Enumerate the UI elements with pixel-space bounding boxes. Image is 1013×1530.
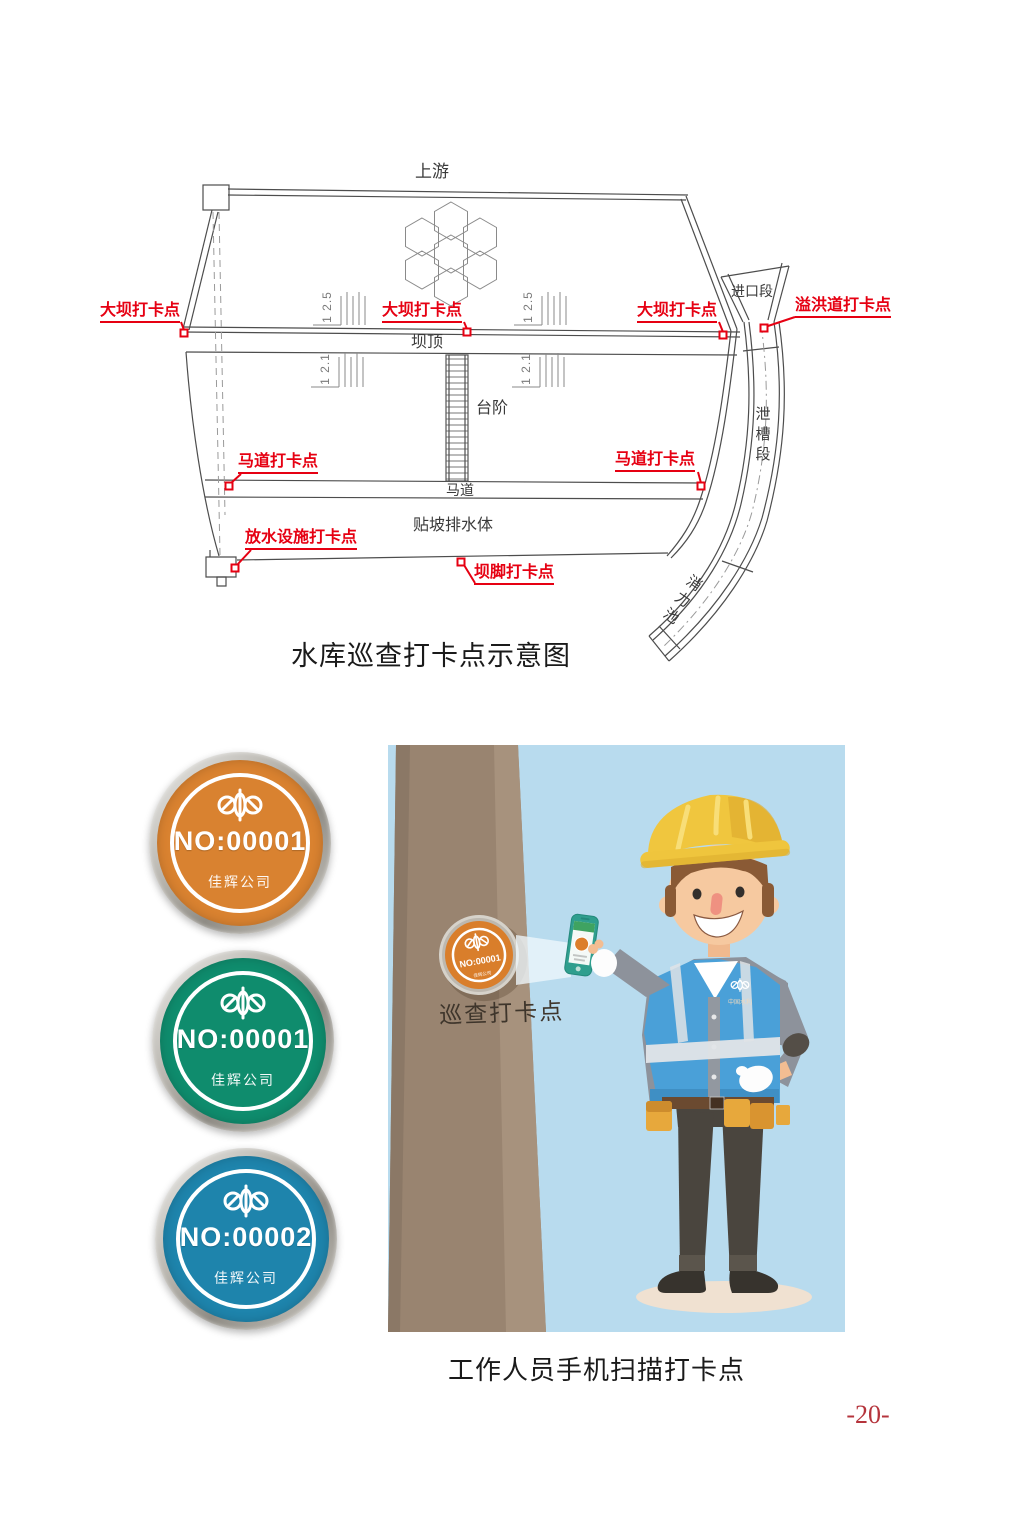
tag-company: 佳辉公司 [208, 872, 272, 892]
worker-scanning-illustration: NO:00001 佳辉公司 巡查打卡点 [388, 745, 845, 1332]
illustration-caption: 工作人员手机扫描打卡点 [395, 1350, 798, 1387]
scan-beam [516, 935, 571, 985]
checkin-tag-green: NO:00001 佳辉公司 [152, 950, 334, 1132]
label-steps: 台阶 [476, 400, 508, 418]
slope-ratio-upper-left: 1 2.5 [320, 284, 334, 330]
checkpoint-dam-toe: 坝脚打卡点 [474, 565, 554, 585]
tag-company: 佳辉公司 [214, 1268, 278, 1288]
tag-face: NO:00002 佳辉公司 [163, 1156, 329, 1322]
checkpoint-spillway: 溢洪道打卡点 [795, 298, 891, 318]
slope-ratio-upper-right: 1 2.5 [521, 284, 535, 330]
tag-face: NO:00001 佳辉公司 [157, 760, 323, 926]
diagram-caption: 水库巡查打卡点示意图 [160, 634, 702, 673]
slope-ratio-lower-right: 1 2.1 [519, 346, 533, 392]
checkin-tag-blue: NO:00002 佳辉公司 [155, 1148, 337, 1330]
reservoir-diagram [0, 0, 1013, 700]
checkpoint-berm-right: 马道打卡点 [615, 452, 695, 472]
checkpoint-water-release: 放水设施打卡点 [245, 530, 357, 550]
document-page: 上游 坝顶 台阶 马道 贴坡排水体 进口段 泄槽段 消力池 1 2.5 1 2.… [0, 0, 1013, 1530]
tag-white-ring [173, 971, 313, 1111]
checkpoint-berm-left: 马道打卡点 [238, 454, 318, 474]
tag-white-ring [176, 1169, 316, 1309]
label-chute-section: 泄槽段 [753, 406, 770, 466]
slope-ratio-lower-left: 1 2.1 [318, 346, 332, 392]
checkin-tag-orange: NO:00001 佳辉公司 [149, 752, 331, 934]
wall-checkin-label: 巡查打卡点 [439, 998, 565, 1028]
tag-white-ring [170, 773, 310, 913]
vest-logo-text: 中国水利 [728, 998, 752, 1006]
tag-company: 佳辉公司 [211, 1070, 275, 1090]
tag-face: NO:00001 佳辉公司 [160, 958, 326, 1124]
label-dam-crest: 坝顶 [411, 334, 443, 352]
label-slope-drainage: 贴坡排水体 [413, 517, 493, 535]
hexagon-revetment [406, 202, 497, 306]
conduit-dashed-lines [213, 212, 225, 555]
label-inlet-section: 进口段 [731, 284, 773, 299]
checkpoint-dam-center: 大坝打卡点 [382, 303, 462, 323]
label-berm: 马道 [446, 483, 474, 498]
label-upstream: 上游 [415, 163, 449, 182]
checkpoint-dam-left: 大坝打卡点 [100, 303, 180, 323]
page-number: -20- [828, 1400, 908, 1430]
checkpoint-dam-right: 大坝打卡点 [637, 303, 717, 323]
